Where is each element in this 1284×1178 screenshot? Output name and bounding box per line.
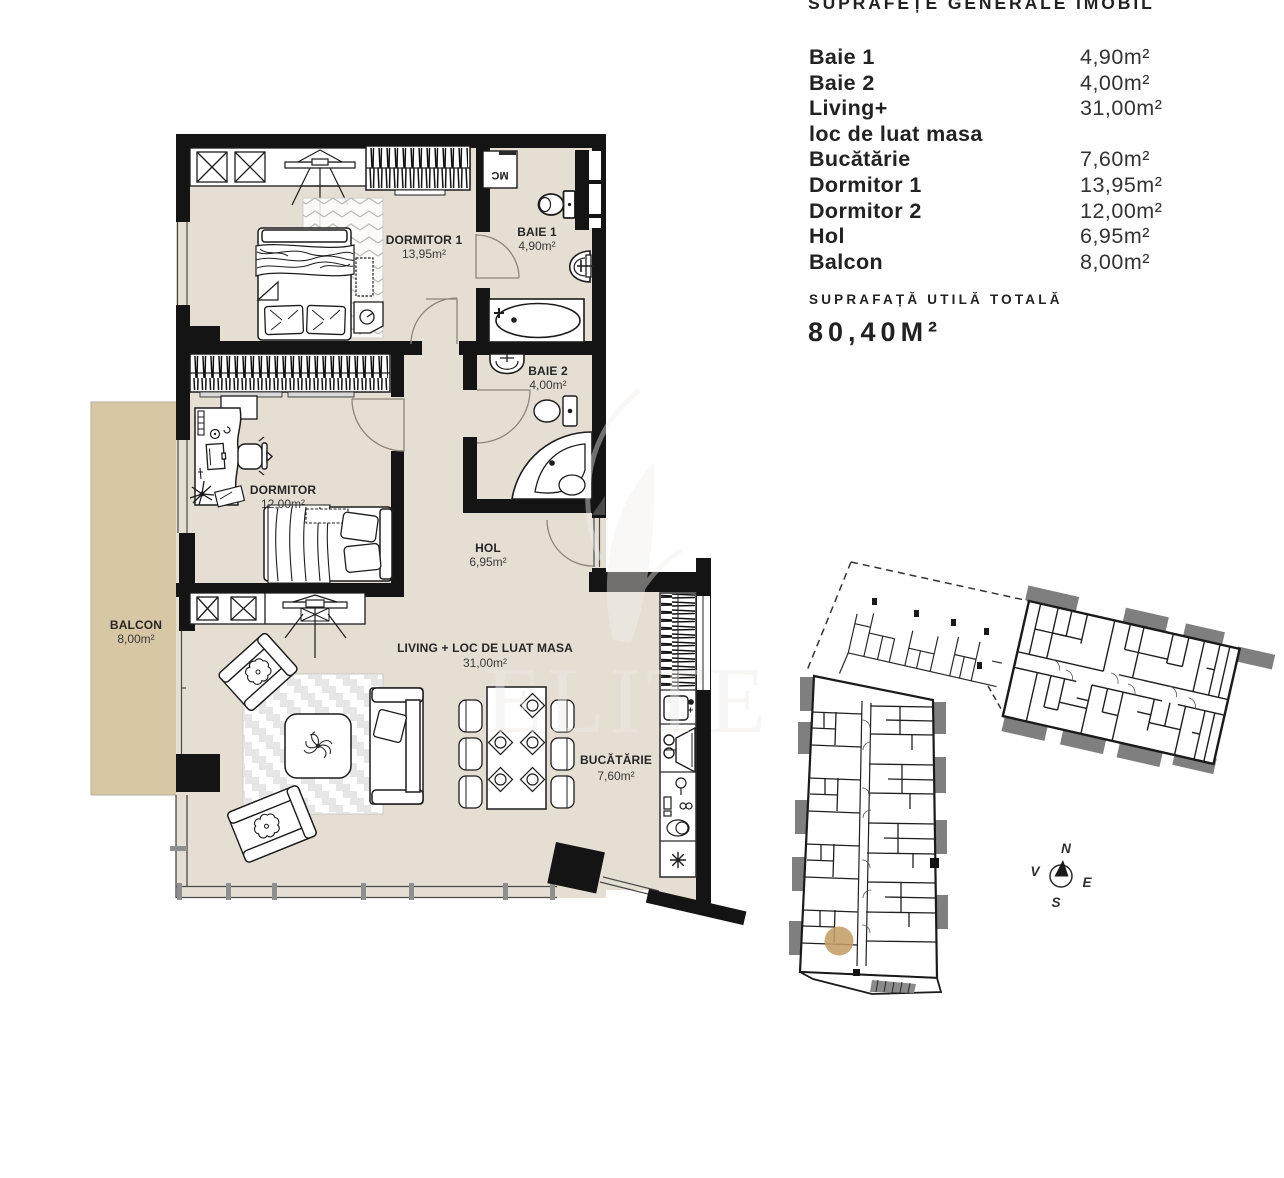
svg-text:DORMITOR: DORMITOR [250,483,316,497]
svg-text:12,00m²: 12,00m² [261,497,305,511]
svg-text:7,60m²: 7,60m² [1080,147,1150,171]
svg-text:Baie 1: Baie 1 [809,45,875,69]
svg-text:8,00m²: 8,00m² [1080,250,1150,274]
svg-text:E: E [1082,875,1092,890]
svg-text:BUCĂTĂRIE: BUCĂTĂRIE [580,752,652,767]
svg-text:BALCON: BALCON [110,618,162,632]
svg-text:7,60m²: 7,60m² [597,769,634,783]
svg-text:S: S [1051,895,1060,910]
svg-text:Bucătărie: Bucătărie [809,147,911,171]
svg-text:4,90m²: 4,90m² [1080,45,1150,69]
svg-text:HOL: HOL [475,541,501,555]
svg-text:Dormitor 1: Dormitor 1 [809,173,922,197]
svg-text:6,95m²: 6,95m² [1080,224,1150,248]
svg-text:Balcon: Balcon [809,250,883,274]
svg-text:80,40M²: 80,40M² [808,317,942,347]
svg-text:12,00m²: 12,00m² [1080,199,1162,223]
svg-text:Baie 2: Baie 2 [809,71,875,95]
svg-text:N: N [1061,841,1071,856]
svg-text:31,00m²: 31,00m² [1080,96,1162,120]
svg-text:8,00m²: 8,00m² [117,632,154,646]
svg-text:MC: MC [491,169,508,181]
svg-text:SUPRAFEȚE GENERALE IMOBIL: SUPRAFEȚE GENERALE IMOBIL [808,0,1155,13]
svg-text:Dormitor 2: Dormitor 2 [809,199,922,223]
svg-text:4,90m²: 4,90m² [518,239,555,253]
svg-text:SUPRAFAȚĂ UTILĂ TOTALĂ: SUPRAFAȚĂ UTILĂ TOTALĂ [809,292,1063,307]
svg-text:Hol: Hol [809,224,845,248]
svg-text:13,95m²: 13,95m² [402,247,446,261]
svg-text:4,00m²: 4,00m² [529,378,566,392]
svg-text:BAIE 1: BAIE 1 [517,225,557,239]
svg-text:13,95m²: 13,95m² [1080,173,1162,197]
svg-text:4,00m²: 4,00m² [1080,71,1150,95]
svg-text:Living+: Living+ [809,96,888,120]
svg-text:BAIE 2: BAIE 2 [528,364,568,378]
svg-text:6,95m²: 6,95m² [469,555,506,569]
svg-text:ELITE: ELITE [485,649,771,753]
svg-text:DORMITOR 1: DORMITOR 1 [386,233,463,247]
svg-text:loc de luat masa: loc de luat masa [809,122,983,146]
svg-text:V: V [1030,864,1040,879]
